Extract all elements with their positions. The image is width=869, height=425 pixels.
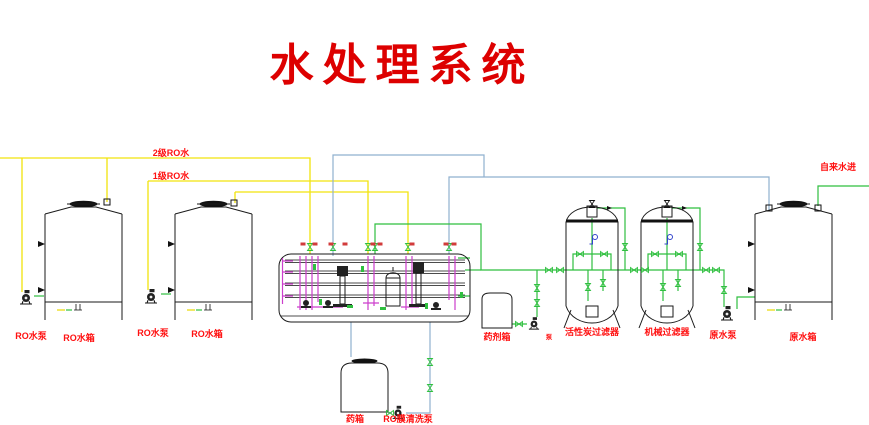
label-dosing-tank: 药剂箱 [483,331,510,342]
pipe-label-ro2: 2级RO水 [153,147,191,158]
label-ro-water-pump-1: RO水泵 [15,330,48,341]
pipe-label-tap-water-in: 自来水进 [820,161,856,172]
raw-water-pump-symbol [721,306,733,320]
ro-membrane-skid [279,254,470,322]
label-ro-water-tank-2: RO水箱 [191,328,223,339]
page-title: 水处理系统 [270,40,535,91]
label-dosing-pump: 泵 [545,332,553,341]
instrument-tags [301,243,457,246]
dosing-pump-symbol [529,317,539,329]
ro-water-pump-1 [20,290,32,304]
label-raw-water-pump: 原水泵 [709,329,737,340]
label-raw-water-tank: 原水箱 [789,331,816,342]
label-mechanical-filter: 机械过滤器 [644,326,690,337]
label-ro-membrane-cleaning-pump: RO膜清洗泵 [383,413,434,424]
water-treatment-drawing: 水处理系统 2级RO水 1级RO水 自来水进 RO水泵 RO水箱 RO水泵 RO… [0,0,869,425]
dosing-tank-vessel [482,293,512,328]
raw-water-tank [748,201,832,320]
chemical-tank-vessel [341,359,388,413]
piping-diagram: 水处理系统 2级RO水 1级RO水 自来水进 RO水泵 RO水箱 RO水泵 RO… [0,0,869,425]
pipe-label-ro1: 1级RO水 [153,170,191,181]
label-ro-water-pump-2: RO水泵 [137,327,170,338]
label-carbon-filter: 活性炭过滤器 [565,326,620,337]
ro-water-pump-2 [145,289,157,303]
ro-water-tank-2nd-stage [38,201,122,320]
label-chem-tank: 药箱 [346,413,364,424]
blue-concentrate-lines [333,155,769,413]
label-ro-water-tank-1: RO水箱 [63,332,95,343]
ro-water-tank-1st-stage [168,201,252,320]
